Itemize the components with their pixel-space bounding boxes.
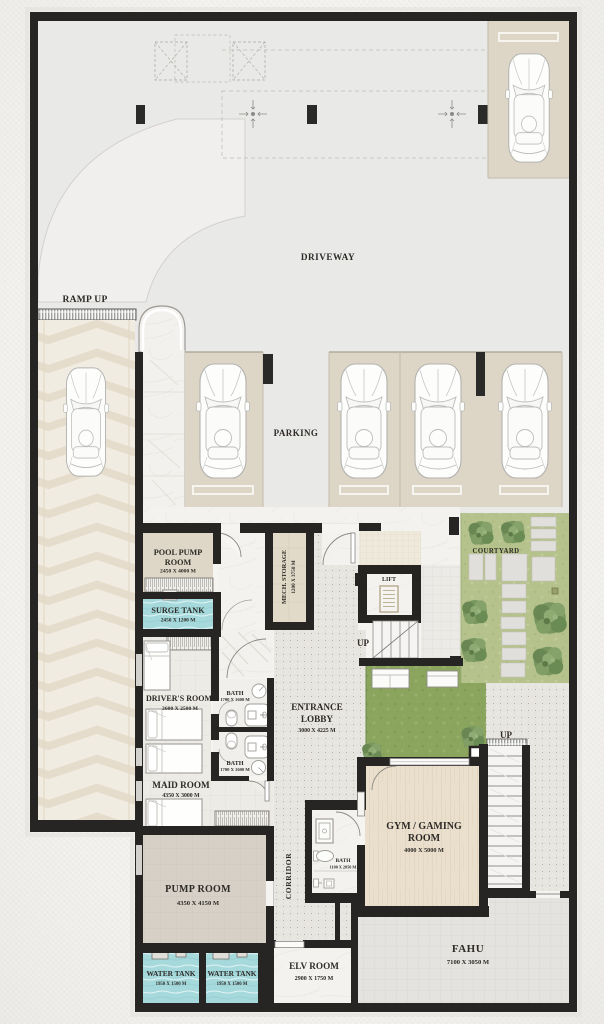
svg-text:ENTRANCE: ENTRANCE	[291, 702, 343, 712]
svg-text:1700 X 1600 M: 1700 X 1600 M	[220, 767, 250, 772]
svg-text:ELV ROOM: ELV ROOM	[289, 961, 339, 971]
svg-text:1950 X 1500 M: 1950 X 1500 M	[156, 982, 187, 987]
svg-text:PARKING: PARKING	[274, 428, 319, 438]
svg-text:1200 X 3750 M: 1200 X 3750 M	[291, 560, 297, 593]
svg-text:1100 X 2050 M: 1100 X 2050 M	[330, 865, 357, 870]
svg-text:4000 X 5000 M: 4000 X 5000 M	[404, 847, 444, 854]
svg-text:WATER TANK: WATER TANK	[146, 969, 195, 978]
svg-text:BATH: BATH	[226, 760, 243, 767]
svg-text:BATH: BATH	[336, 858, 352, 864]
svg-text:LIFT: LIFT	[382, 577, 396, 583]
svg-text:3600 X 2500 M: 3600 X 2500 M	[162, 706, 199, 712]
svg-text:UP: UP	[357, 638, 369, 648]
svg-text:CORRIDOR: CORRIDOR	[284, 853, 293, 899]
svg-text:GYM / GAMING: GYM / GAMING	[386, 821, 462, 832]
svg-text:2900 X 1750 M: 2900 X 1750 M	[295, 976, 334, 982]
svg-text:SURGE TANK: SURGE TANK	[151, 606, 205, 615]
svg-text:MAID ROOM: MAID ROOM	[152, 780, 210, 790]
svg-text:DRIVEWAY: DRIVEWAY	[301, 252, 355, 262]
svg-text:2450 X 1200 M: 2450 X 1200 M	[161, 618, 196, 624]
svg-text:UP: UP	[500, 730, 512, 740]
svg-text:1700 X 1600 M: 1700 X 1600 M	[220, 697, 250, 702]
svg-text:FAHU: FAHU	[452, 943, 484, 955]
svg-text:LOBBY: LOBBY	[301, 714, 334, 724]
svg-text:ROOM: ROOM	[165, 558, 192, 567]
svg-text:PUMP ROOM: PUMP ROOM	[165, 884, 231, 895]
svg-text:RAMP UP: RAMP UP	[62, 295, 107, 305]
svg-text:4350 X 4150 M: 4350 X 4150 M	[177, 900, 220, 907]
svg-text:4350 X 3000 M: 4350 X 3000 M	[162, 793, 200, 799]
svg-text:ROOM: ROOM	[408, 833, 441, 844]
svg-text:2450 X 4000 M: 2450 X 4000 M	[160, 569, 197, 575]
svg-text:1950 X 1500 M: 1950 X 1500 M	[217, 982, 248, 987]
svg-text:3000 X 4225 M: 3000 X 4225 M	[298, 728, 336, 734]
svg-text:BATH: BATH	[226, 690, 243, 697]
svg-text:MECH. STORAGE: MECH. STORAGE	[281, 550, 288, 604]
svg-text:7100 X 3050 M: 7100 X 3050 M	[447, 959, 490, 966]
svg-text:WATER TANK: WATER TANK	[207, 969, 256, 978]
svg-text:DRIVER'S ROOM: DRIVER'S ROOM	[146, 694, 212, 703]
svg-text:POOL PUMP: POOL PUMP	[154, 548, 202, 557]
